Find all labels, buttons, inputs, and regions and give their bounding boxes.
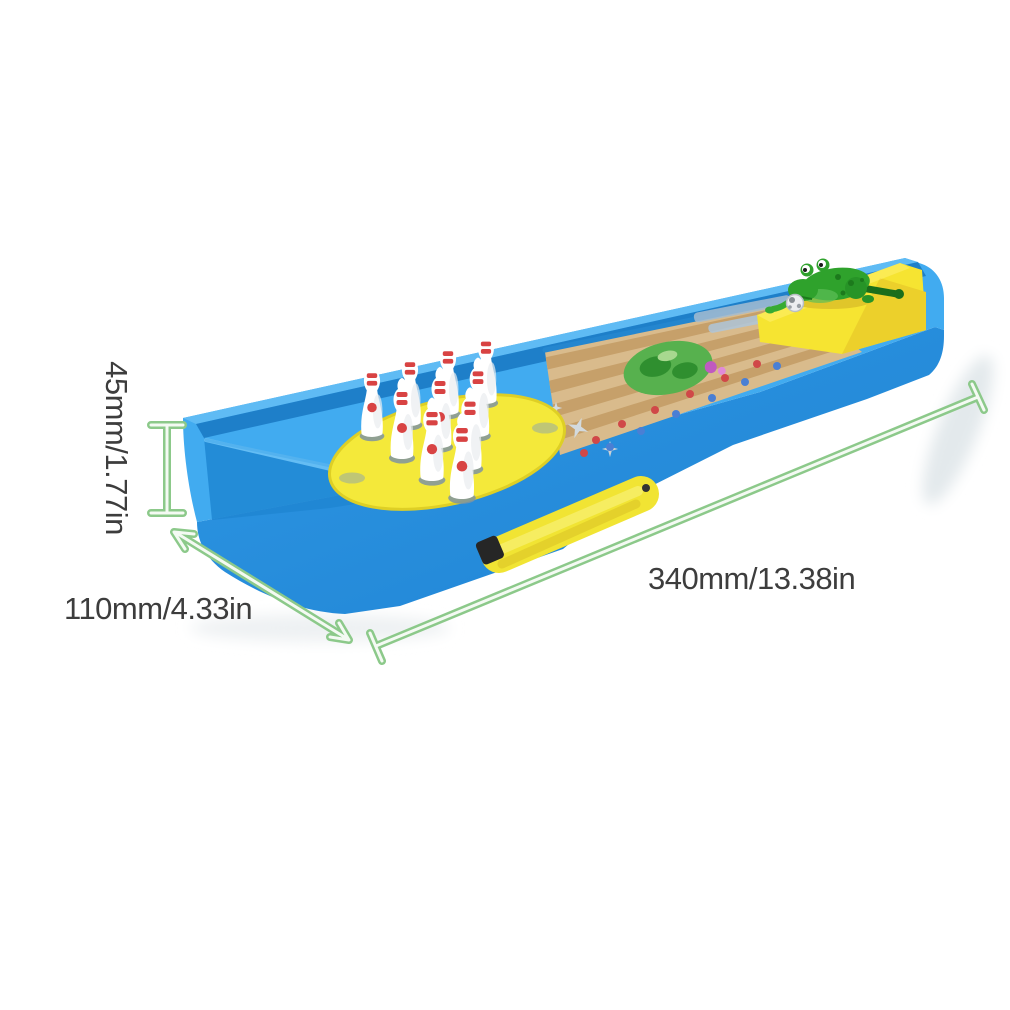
lane-dot xyxy=(618,420,626,428)
frog-pupil xyxy=(803,268,807,272)
product-illustration: 45mm/1.77in 110mm/4.33in 340mm/13.38in xyxy=(0,0,1010,1010)
lane-dot xyxy=(580,449,588,457)
lane-dot xyxy=(606,443,614,451)
empty-pin-hole xyxy=(532,423,558,434)
empty-pin-hole xyxy=(339,473,365,484)
mini-bowling-ball xyxy=(787,295,804,312)
height-dimension-line xyxy=(151,425,183,513)
lane-dot xyxy=(721,374,729,382)
lane-dot xyxy=(592,436,600,444)
lane-dot xyxy=(686,390,694,398)
product-photo-canvas: 45mm/1.77in 110mm/4.33in 340mm/13.38in xyxy=(0,0,1010,1010)
height-dimension-label: 45mm/1.77in xyxy=(99,361,134,535)
frog-pupil xyxy=(819,263,823,267)
slider-tip xyxy=(642,484,650,492)
lane-dot xyxy=(708,394,716,402)
frog-lever-knob xyxy=(894,289,904,299)
width-dimension-label: 110mm/4.33in xyxy=(64,591,252,626)
lane-dot xyxy=(672,410,680,418)
length-dimension-label: 340mm/13.38in xyxy=(648,561,855,596)
frog-front-foot xyxy=(765,307,775,314)
lane-dot xyxy=(741,378,749,386)
frog-back-foot xyxy=(862,295,874,303)
lane-dot xyxy=(637,427,645,435)
lane-dot xyxy=(773,362,781,370)
lane-dot xyxy=(651,406,659,414)
lane-dot xyxy=(753,360,761,368)
